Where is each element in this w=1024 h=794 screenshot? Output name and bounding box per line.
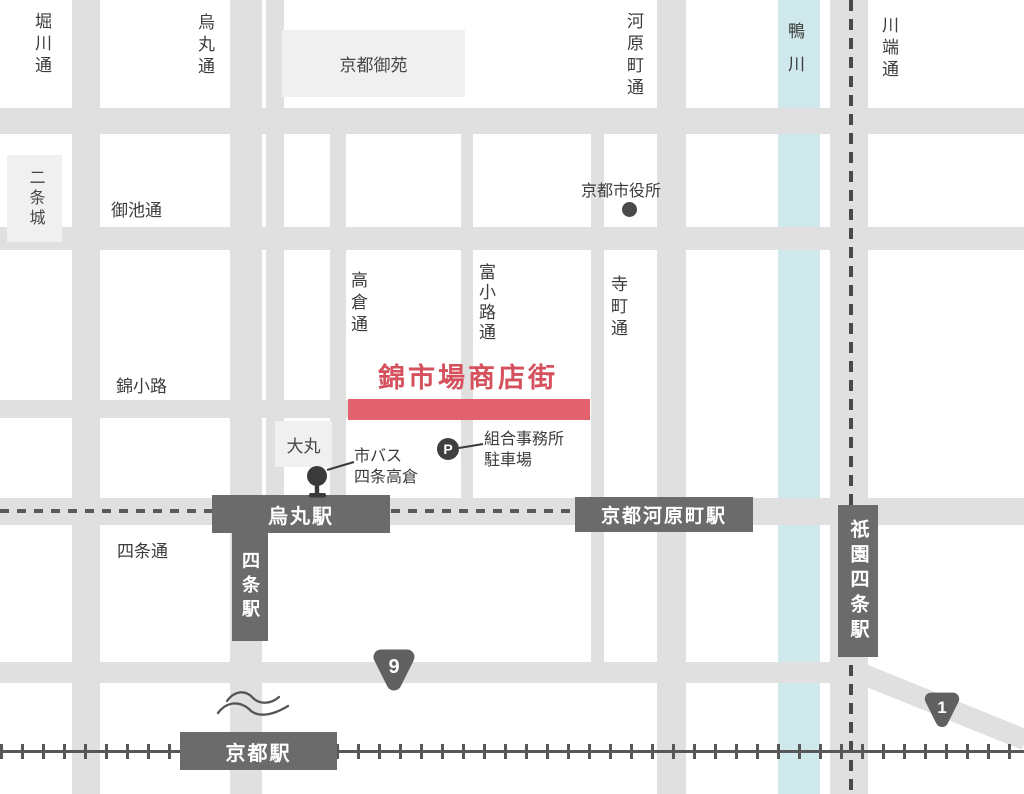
road-top-horizontal [0, 108, 1024, 134]
jr-line [0, 750, 1024, 753]
parking-icon-letter: P [443, 441, 452, 457]
road-teramachi-dori [591, 130, 604, 683]
route-9-badge: 9 [367, 644, 421, 694]
shijo-dori-label: 四条通 [117, 537, 168, 562]
bus-stop-note-line1: 市バス [354, 446, 418, 467]
route-9-number: 9 [388, 656, 399, 678]
daimaru-block: 大丸 [275, 421, 332, 467]
kawabata-dori-label: 川端通 [880, 16, 897, 82]
kamo-river-label: 鴨川 [786, 22, 803, 88]
teramachi-dori-label: 寺町通 [609, 275, 626, 341]
karasuma-dori-label: 烏丸通 [196, 13, 213, 79]
nijo-castle-label: 二条城 [23, 169, 47, 229]
road-tominokoji-dori [461, 108, 473, 525]
horikawa-dori-label: 堀川通 [33, 12, 50, 78]
road-oike-dori [0, 227, 1024, 250]
nishiki-market-highlight-bar [348, 399, 590, 420]
station-gion-shijo-label: 祇園四条駅 [845, 519, 872, 644]
station-kyoto-kawaramachi-label: 京都河原町駅 [601, 501, 727, 528]
parking-icon: P [437, 438, 459, 460]
station-kyoto-label: 京都駅 [226, 737, 292, 766]
bus-stop-note: 市バス 四条高倉 [354, 446, 418, 488]
kyoto-gyoen-block: 京都御苑 [282, 30, 465, 97]
daimaru-label: 大丸 [287, 432, 321, 457]
nishikikoji-label: 錦小路 [116, 372, 167, 397]
bus-stop-icon [299, 463, 339, 503]
station-shijo: 四条駅 [232, 533, 268, 641]
bus-stop-note-line2: 四条高倉 [354, 467, 418, 488]
city-hall-label: 京都市役所 [581, 177, 661, 201]
station-karasuma-label: 烏丸駅 [268, 500, 334, 529]
station-gion-shijo: 祇園四条駅 [838, 505, 878, 657]
oike-dori-label: 御池通 [111, 196, 162, 221]
route-1-number: 1 [937, 698, 946, 717]
road-nishikikoji-dori [0, 400, 348, 418]
kyoto-nishiki-market-map: 京都御苑 二条城 大丸 錦市場商店街 堀川通 烏丸通 河原町通 川端通 鴨川 高… [0, 0, 1024, 794]
station-shijo-label: 四条駅 [237, 551, 263, 623]
station-kyoto: 京都駅 [180, 732, 337, 770]
keihan-line-dashes [849, 0, 853, 794]
route-1-badge: 1 [919, 688, 965, 730]
kawaramachi-dori-label: 河原町通 [625, 12, 642, 100]
city-hall-dot [622, 202, 637, 217]
nishiki-market-title: 錦市場商店街 [378, 356, 558, 395]
road-gojo-horizontal [0, 662, 868, 683]
kyoto-gyoen-label: 京都御苑 [340, 51, 408, 76]
parking-note-line1: 組合事務所 [484, 429, 564, 450]
nijo-castle-block: 二条城 [7, 155, 62, 242]
station-kyoto-kawaramachi: 京都河原町駅 [575, 497, 753, 532]
tominokoji-dori-label: 富小路通 [477, 263, 494, 343]
parking-note-line2: 駐車場 [484, 450, 564, 471]
parking-note: 組合事務所 駐車場 [484, 429, 564, 471]
takakura-dori-label: 高倉通 [349, 271, 366, 337]
